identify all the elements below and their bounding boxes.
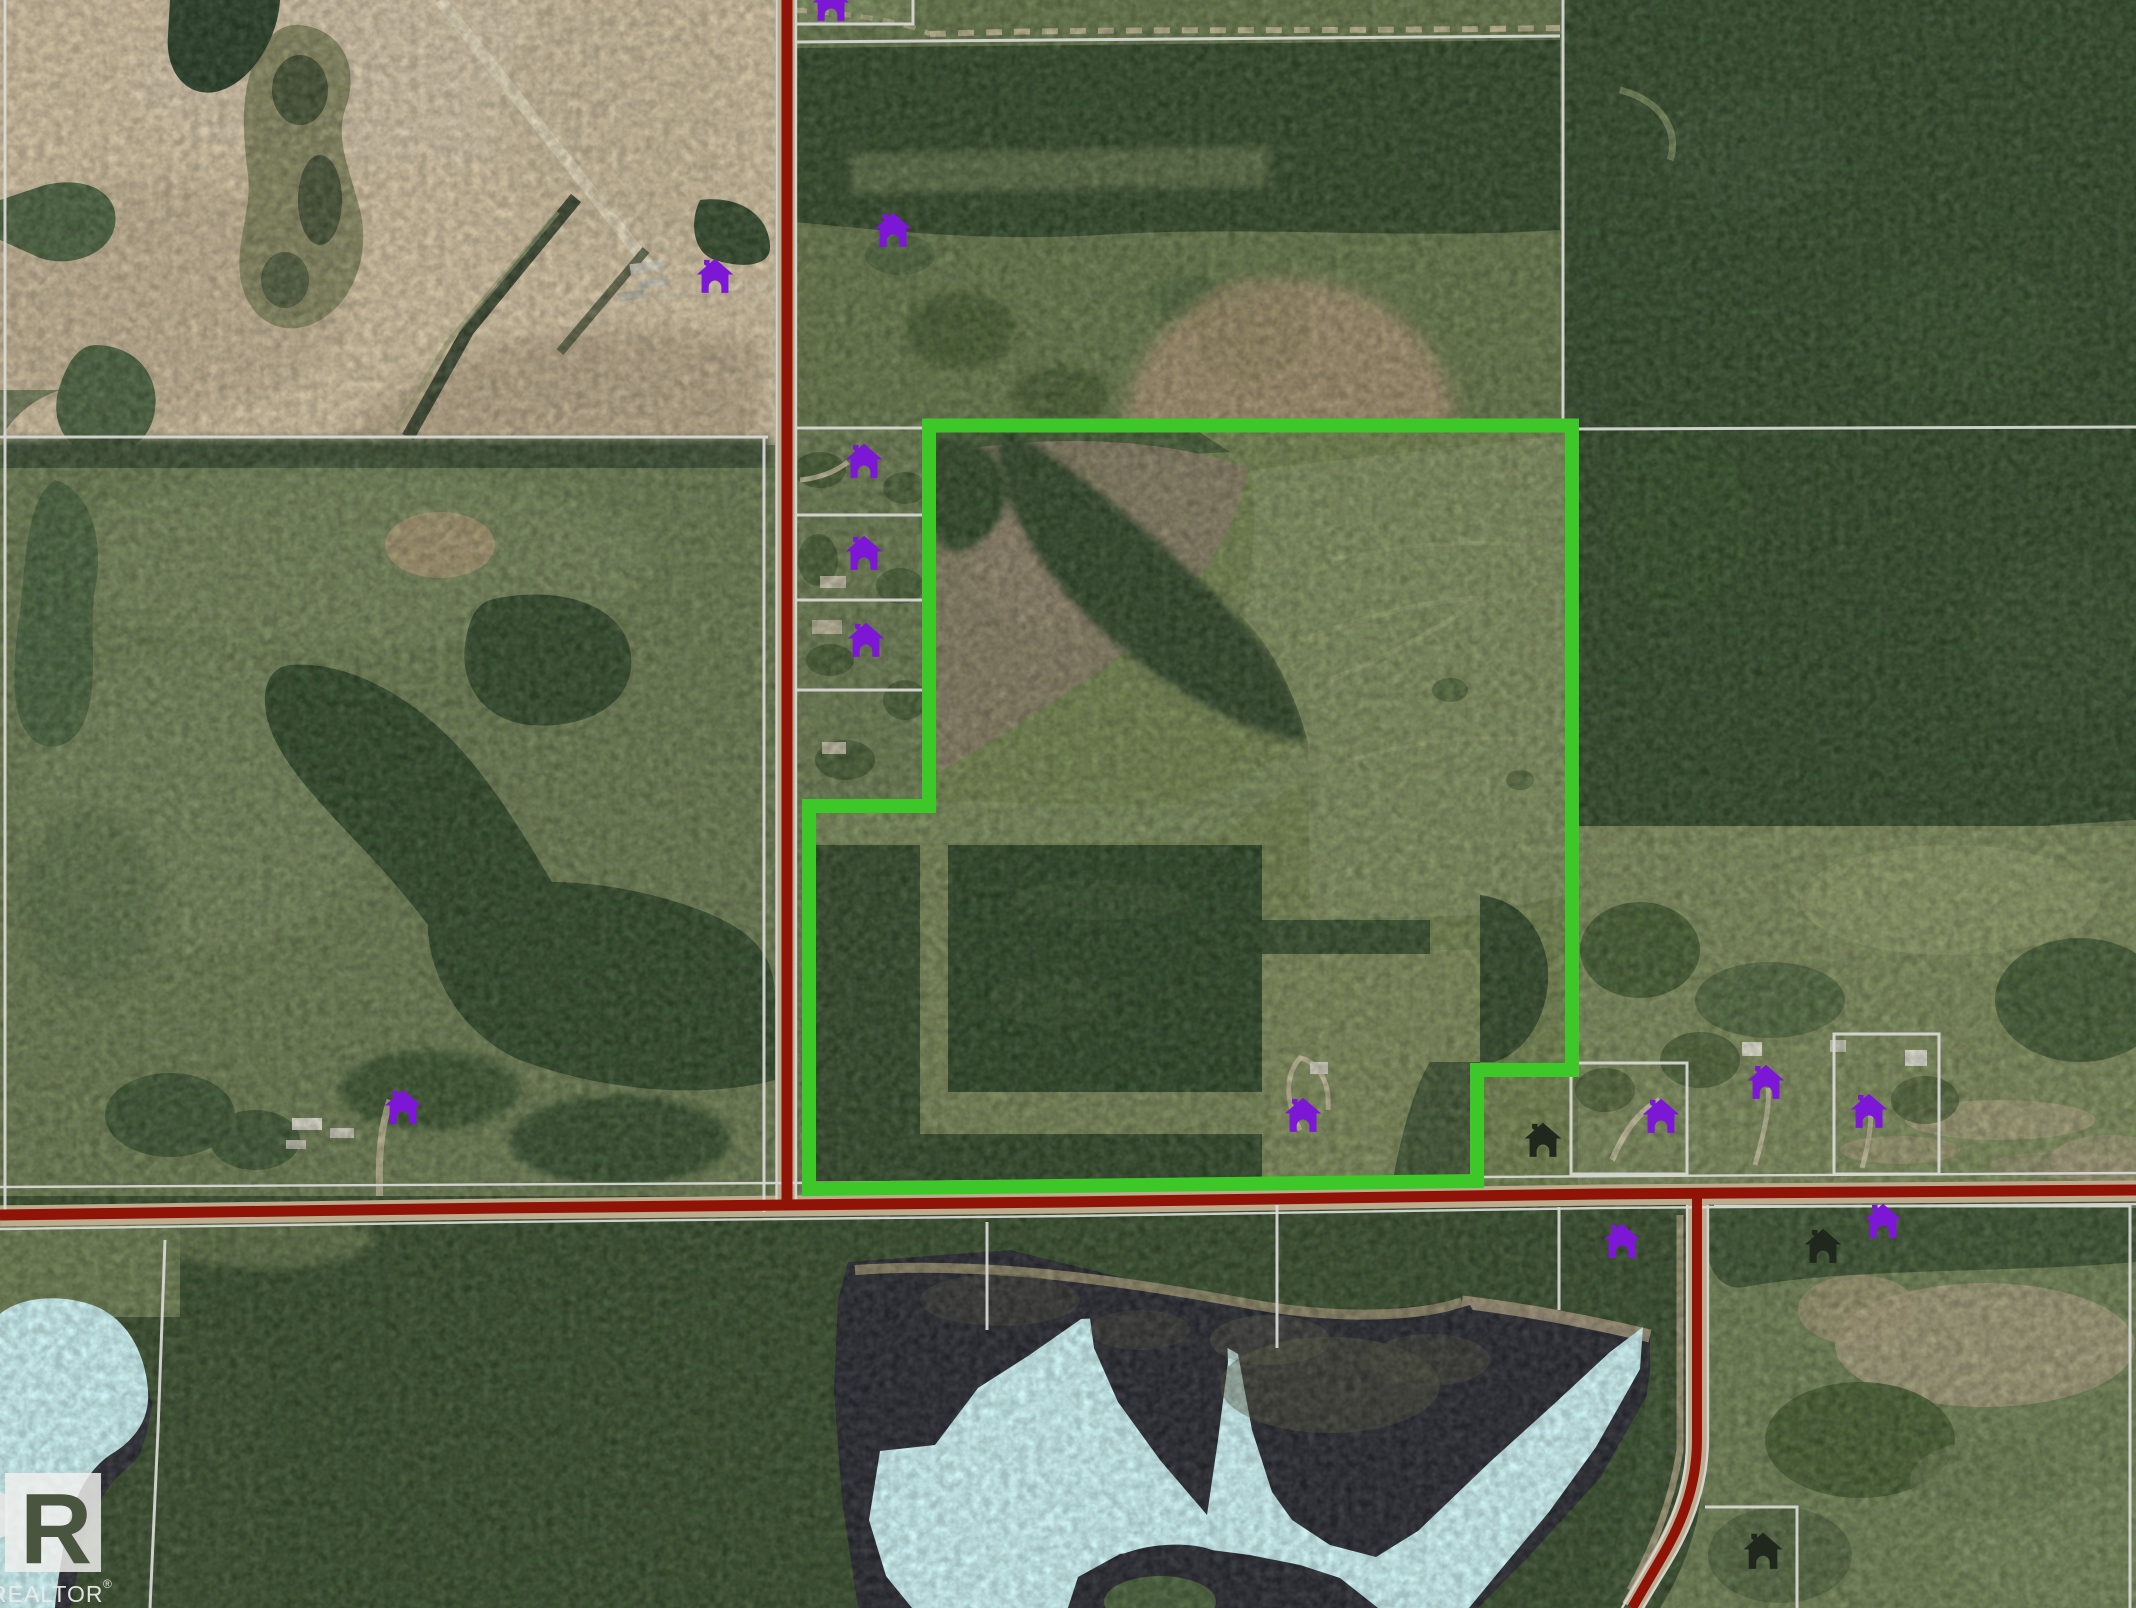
svg-text:REALTOR: REALTOR [0,1581,104,1607]
svg-text:®: ® [103,1577,112,1591]
svg-text:R: R [20,1473,92,1585]
